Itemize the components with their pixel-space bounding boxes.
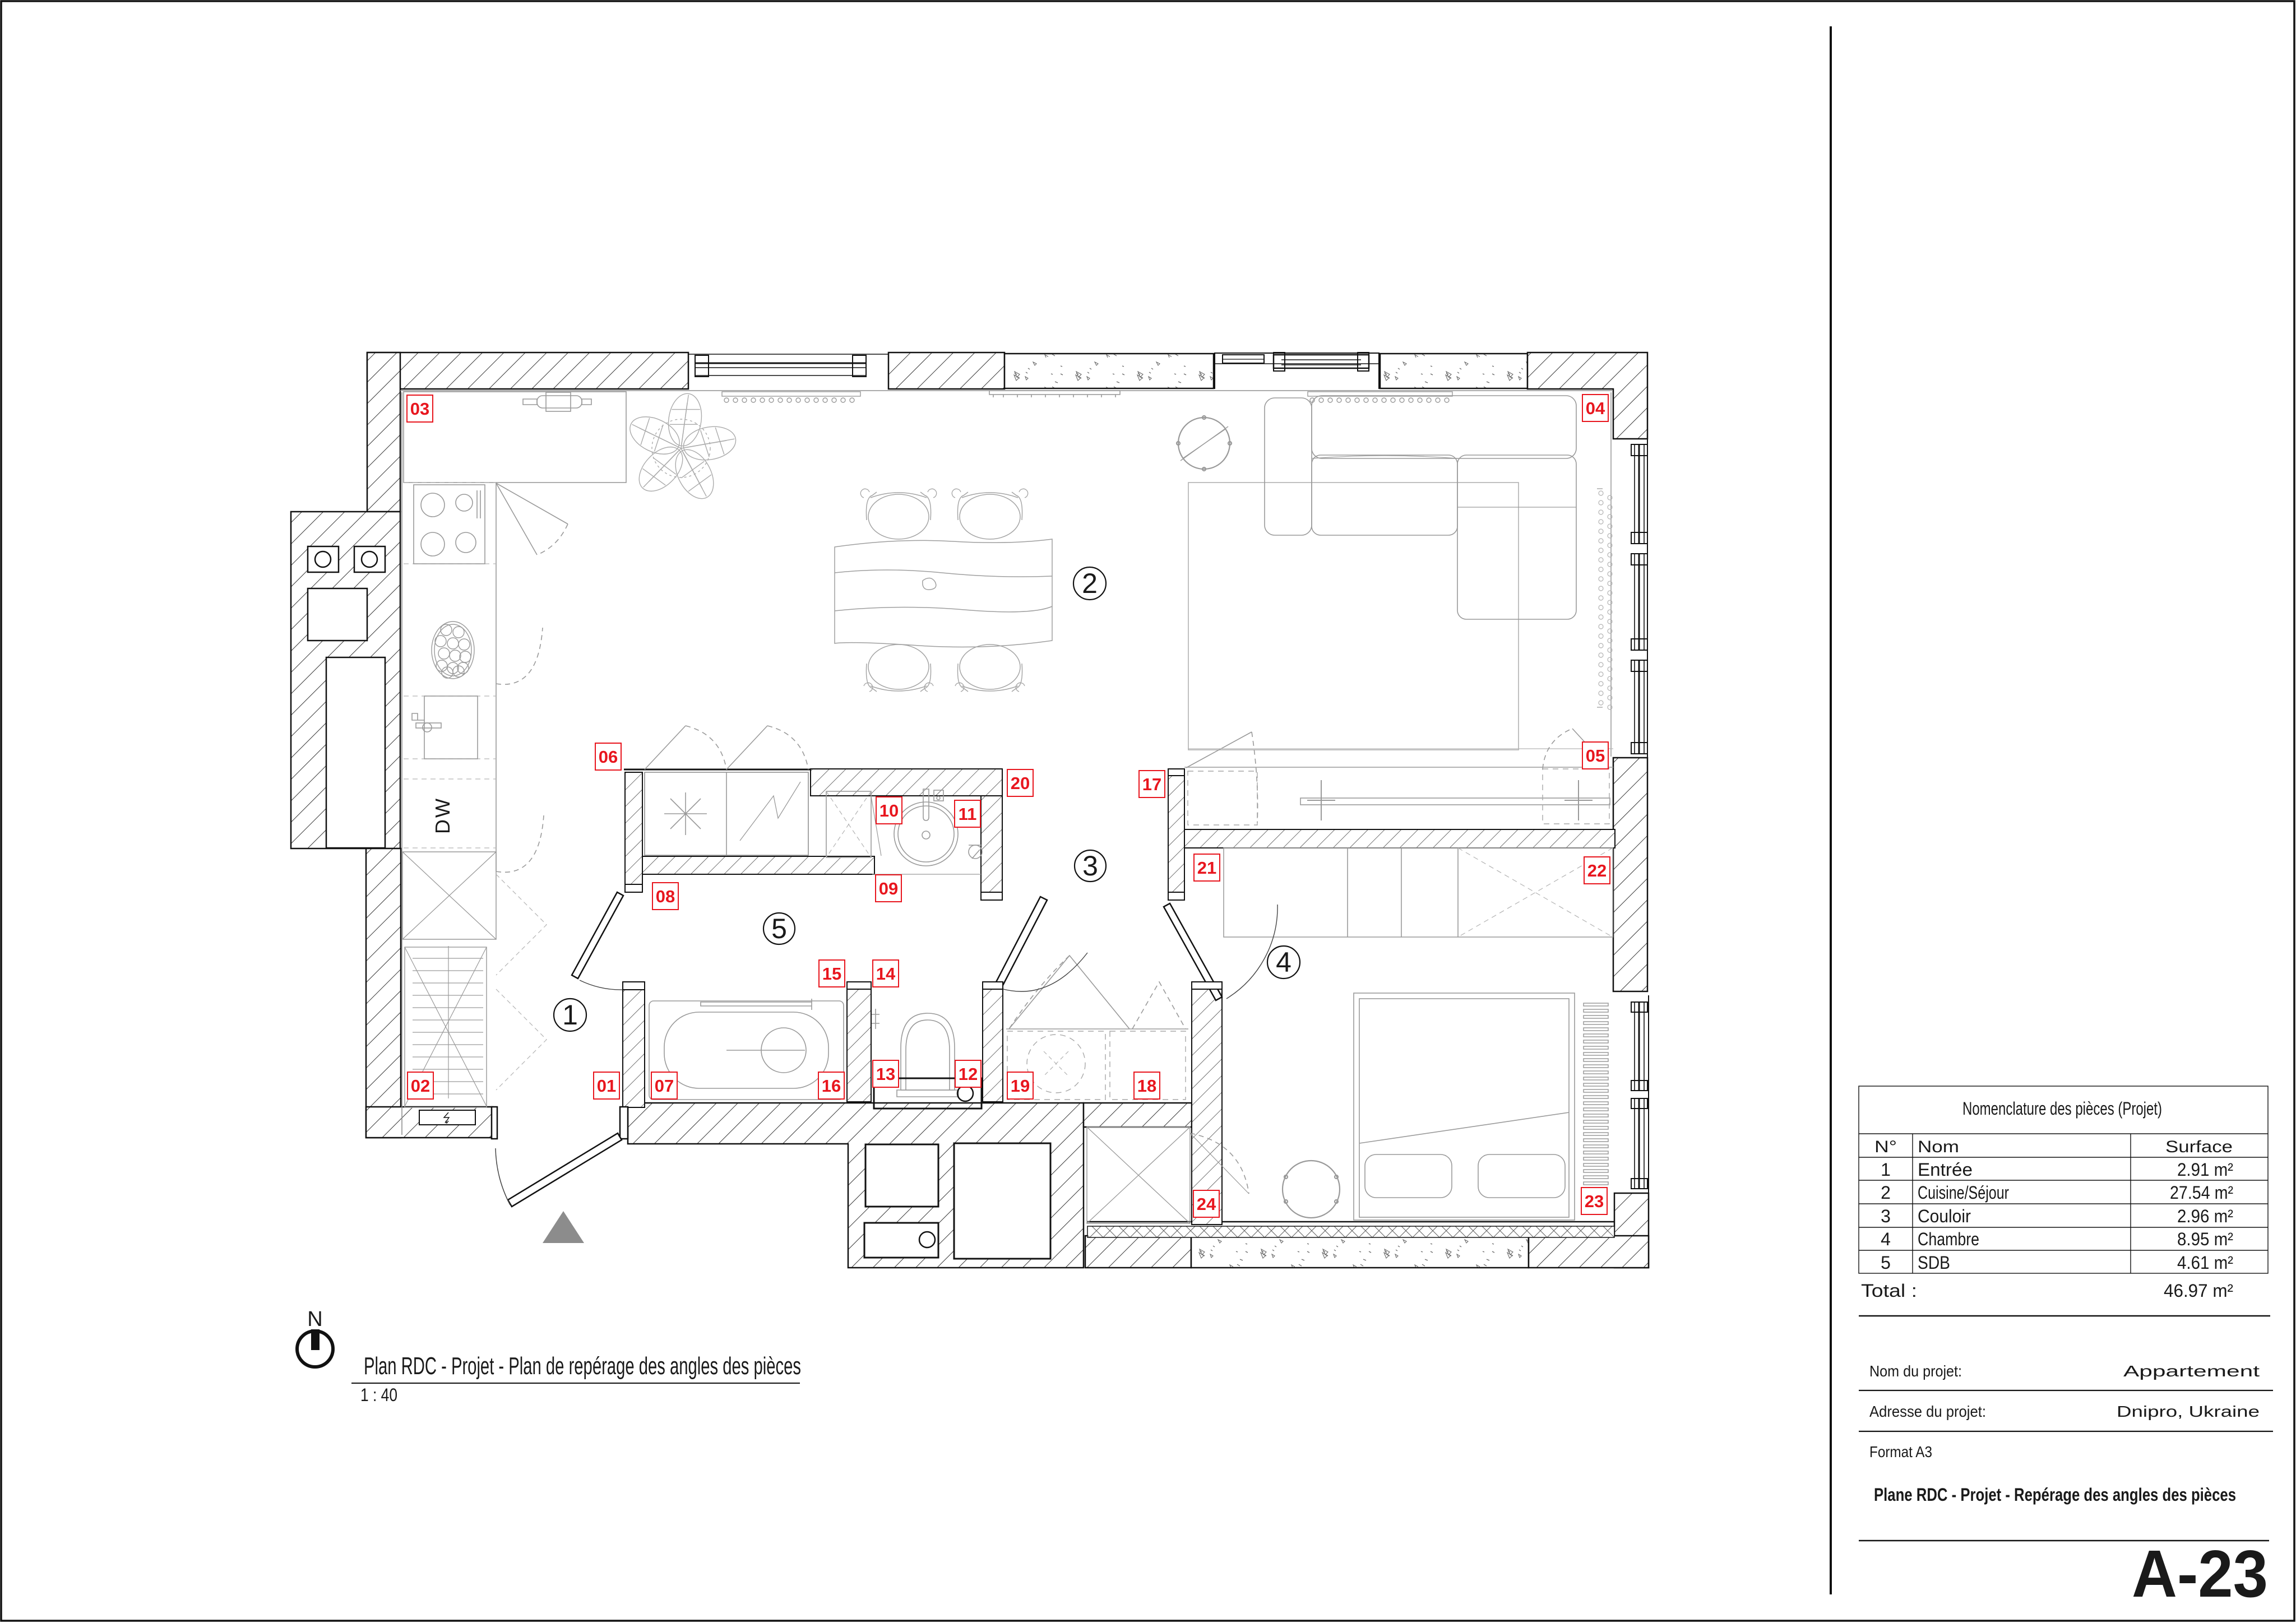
svg-text:2: 2 — [1082, 568, 1098, 599]
svg-text:2: 2 — [1881, 1183, 1891, 1203]
svg-text:01: 01 — [597, 1076, 616, 1096]
svg-text:4: 4 — [1881, 1229, 1891, 1249]
svg-text:2.91 m²: 2.91 m² — [2177, 1160, 2233, 1180]
svg-text:1: 1 — [562, 999, 578, 1031]
svg-text:A-23: A-23 — [2132, 1537, 2268, 1611]
svg-text:5: 5 — [1881, 1253, 1891, 1273]
svg-text:Nom: Nom — [1918, 1138, 1959, 1156]
svg-text:08: 08 — [656, 887, 675, 906]
svg-text:22: 22 — [1587, 861, 1607, 880]
svg-text:07: 07 — [655, 1076, 674, 1096]
svg-text:Cuisine/Séjour: Cuisine/Séjour — [1918, 1183, 2009, 1203]
svg-text:21: 21 — [1197, 858, 1216, 878]
svg-text:02: 02 — [411, 1076, 430, 1096]
svg-text:Plan RDC - Projet - Plan de re: Plan RDC - Projet - Plan de repérage des… — [364, 1352, 801, 1380]
svg-text:12: 12 — [959, 1064, 978, 1084]
svg-text:06: 06 — [599, 747, 618, 767]
svg-text:1 : 40: 1 : 40 — [360, 1385, 397, 1405]
svg-text:DW: DW — [431, 797, 454, 834]
svg-text:05: 05 — [1586, 746, 1605, 766]
svg-text:18: 18 — [1137, 1076, 1156, 1096]
svg-text:Chambre: Chambre — [1918, 1229, 1979, 1249]
svg-text:8.95 m²: 8.95 m² — [2177, 1229, 2233, 1249]
svg-text:Surface: Surface — [2165, 1138, 2233, 1156]
svg-text:N: N — [307, 1307, 322, 1331]
svg-text:14: 14 — [876, 964, 896, 984]
svg-text:4: 4 — [1276, 947, 1291, 978]
svg-text:24: 24 — [1197, 1194, 1216, 1214]
svg-text:Adresse du projet:: Adresse du projet: — [1869, 1403, 1986, 1420]
svg-text:3: 3 — [1082, 850, 1098, 882]
svg-text:Plane RDC - Projet - Repérage: Plane RDC - Projet - Repérage des angles… — [1874, 1485, 2236, 1505]
svg-text:SDB: SDB — [1918, 1253, 1950, 1273]
svg-text:15: 15 — [822, 964, 841, 984]
svg-text:3: 3 — [1881, 1206, 1891, 1226]
svg-text:1: 1 — [1881, 1160, 1891, 1180]
svg-text:Nomenclature des pièces (Proje: Nomenclature des pièces (Projet) — [1962, 1098, 2162, 1119]
svg-text:27.54 m²: 27.54 m² — [2170, 1183, 2233, 1203]
svg-text:16: 16 — [822, 1076, 841, 1096]
svg-text:04: 04 — [1586, 398, 1605, 418]
svg-text:03: 03 — [410, 399, 429, 419]
svg-text:2.96 m²: 2.96 m² — [2177, 1206, 2233, 1226]
svg-text:20: 20 — [1011, 773, 1030, 793]
svg-text:4.61 m²: 4.61 m² — [2177, 1253, 2233, 1273]
svg-text:Entrée: Entrée — [1918, 1160, 1973, 1180]
svg-text:N°: N° — [1874, 1138, 1897, 1156]
svg-text:13: 13 — [876, 1064, 895, 1084]
svg-text:Nom du projet:: Nom du projet: — [1869, 1362, 1962, 1380]
svg-text:Dnipro, Ukraine: Dnipro, Ukraine — [2117, 1403, 2260, 1420]
svg-text:23: 23 — [1585, 1191, 1604, 1211]
svg-text:5: 5 — [771, 913, 787, 944]
svg-text:17: 17 — [1142, 775, 1161, 794]
svg-text:Total :: Total : — [1861, 1281, 1917, 1301]
svg-text:10: 10 — [879, 801, 899, 820]
svg-text:09: 09 — [879, 879, 898, 898]
svg-text:46.97 m²: 46.97 m² — [2164, 1281, 2233, 1301]
svg-text:11: 11 — [959, 804, 977, 824]
svg-text:Couloir: Couloir — [1918, 1206, 1971, 1226]
svg-text:19: 19 — [1011, 1076, 1030, 1096]
svg-text:Appartement: Appartement — [2123, 1362, 2260, 1380]
svg-text:Format A3: Format A3 — [1869, 1443, 1932, 1460]
